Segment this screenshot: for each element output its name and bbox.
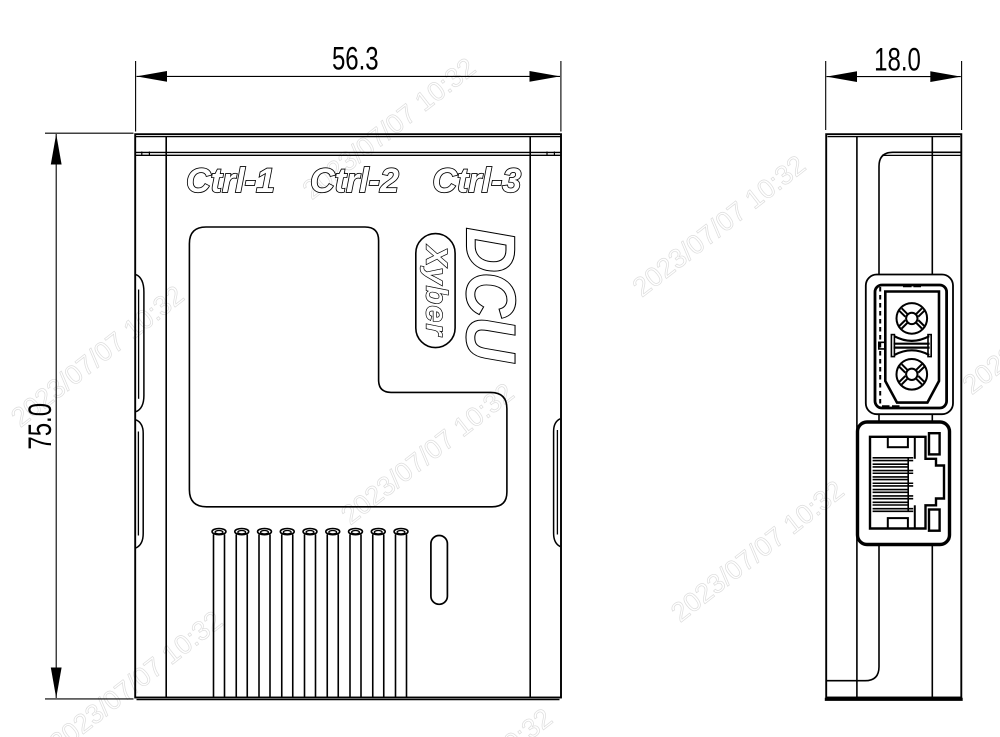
svg-text:56.3: 56.3	[332, 40, 379, 76]
svg-text:Ctrl-3: Ctrl-3	[432, 162, 521, 200]
svg-text:DCU: DCU	[452, 228, 529, 364]
svg-text:Ctrl-1: Ctrl-1	[186, 162, 275, 200]
svg-text:75.0: 75.0	[22, 403, 58, 450]
svg-text:Ctrl-2: Ctrl-2	[310, 162, 399, 200]
svg-text:18.0: 18.0	[874, 41, 921, 77]
svg-text:Xyber: Xyber	[420, 244, 453, 338]
